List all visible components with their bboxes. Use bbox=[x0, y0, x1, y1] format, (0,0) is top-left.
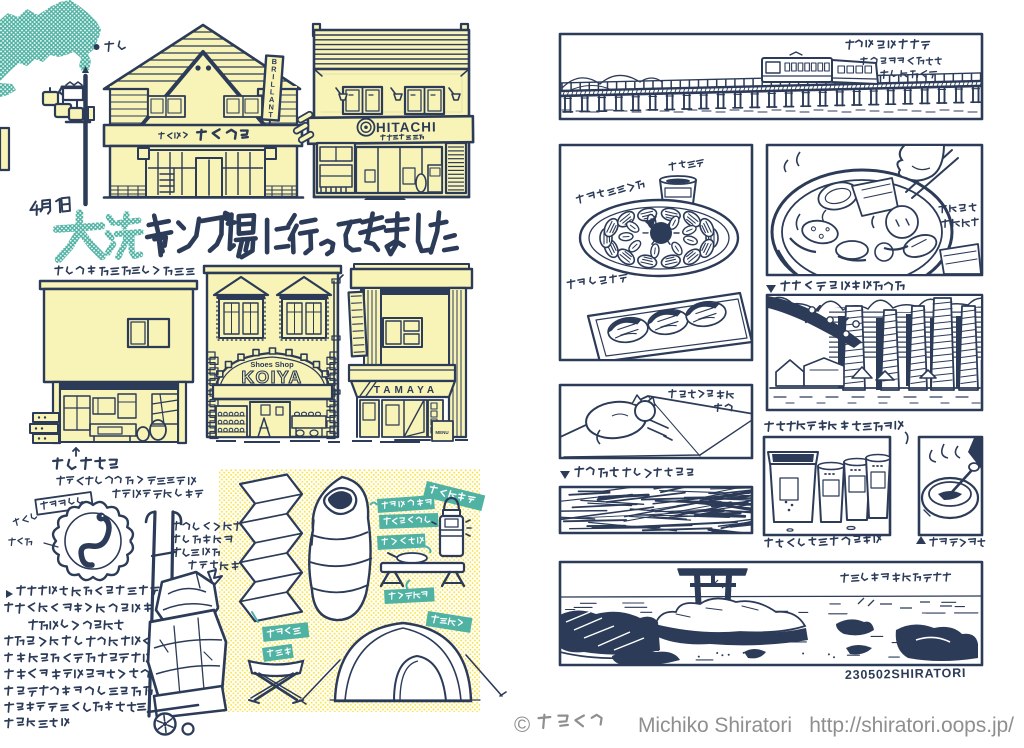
svg-text:©: © bbox=[514, 712, 530, 737]
svg-text:Michiko Shiratori http://shi: Michiko Shiratori http://shiratori.oops.… bbox=[638, 714, 1014, 737]
svg-text:TAMAYA: TAMAYA bbox=[374, 385, 438, 396]
svg-text:MENU: MENU bbox=[435, 430, 448, 435]
svg-text:HITACHI: HITACHI bbox=[376, 120, 437, 136]
svg-text:230502SHIRATORI: 230502SHIRATORI bbox=[845, 666, 967, 682]
